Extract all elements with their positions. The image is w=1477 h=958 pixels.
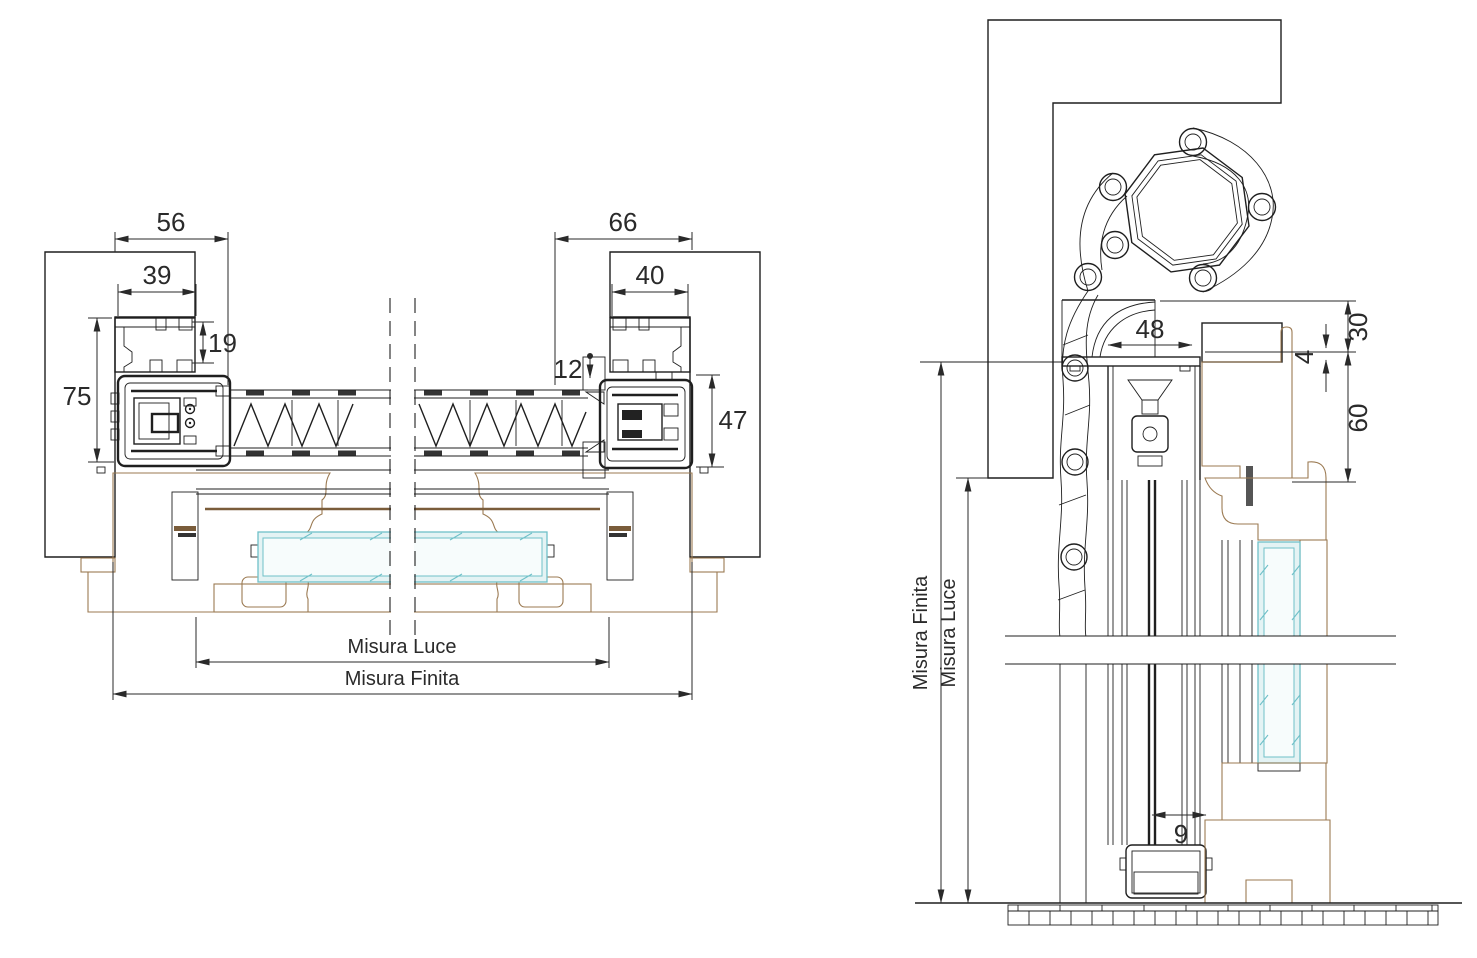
dim-label-75: 75 <box>63 381 92 411</box>
dim-12: 12 <box>554 353 593 384</box>
screen-bottom-bar <box>1126 845 1206 898</box>
dim-19: 19 <box>192 322 237 363</box>
dim-label-19: 19 <box>208 328 237 358</box>
dim-4: 4 <box>1289 324 1326 392</box>
left-drawing: 56 39 19 75 12 66 <box>45 207 760 700</box>
dim-label-48: 48 <box>1136 314 1165 344</box>
dim-label-4: 4 <box>1289 350 1319 364</box>
wood-lintel <box>1202 327 1292 478</box>
aluminium-profile-left <box>115 318 195 372</box>
wood-sill-block <box>1205 820 1330 903</box>
dim-48: 48 <box>1108 314 1192 345</box>
aluminium-profile-right <box>610 318 690 372</box>
dim-label-56: 56 <box>157 207 186 237</box>
dim-misura-luce-vertical: Misura Luce <box>938 478 988 903</box>
dim-30-60-column: 30 60 <box>1160 301 1373 482</box>
dim-label-9: 9 <box>1174 819 1188 849</box>
right-drawing: 48 30 60 4 9 Misura Finita Misura Luc <box>910 20 1462 925</box>
sill-hatch-strip <box>81 558 115 572</box>
dim-39: 39 <box>118 260 196 316</box>
dim-label-47: 47 <box>719 405 748 435</box>
wood-sash-bottom-rail <box>1222 763 1326 820</box>
concrete-wall-l-shape <box>988 20 1281 478</box>
cad-sheet: 56 39 19 75 12 66 <box>0 0 1477 958</box>
dim-label-12: 12 <box>554 354 583 384</box>
concrete-block-small <box>1202 323 1282 362</box>
technical-drawing: 56 39 19 75 12 66 <box>0 0 1477 958</box>
dim-47: 47 <box>696 375 747 467</box>
dim-40: 40 <box>612 260 688 316</box>
roller-octagon <box>1125 148 1249 272</box>
dim-75: 75 <box>63 318 114 462</box>
wood-frame-head <box>1205 462 1326 540</box>
dim-label-misura-finita-v: Misura Finita <box>910 575 932 690</box>
dim-label-39: 39 <box>143 260 172 290</box>
dim-label-60: 60 <box>1343 404 1373 433</box>
floor <box>915 903 1462 925</box>
dim-label-misura-luce-v: Misura Luce <box>938 579 960 688</box>
wood-frame-vertical <box>1202 327 1330 903</box>
roller-shutter-coil <box>1058 128 1276 903</box>
dim-label-30: 30 <box>1343 313 1373 342</box>
screw <box>1246 466 1253 506</box>
dim-label-40: 40 <box>636 260 665 290</box>
dim-label-misura-luce: Misura Luce <box>348 636 457 658</box>
dim-label-66: 66 <box>609 207 638 237</box>
dim-9: 9 <box>1152 815 1206 849</box>
seal-hatch-top <box>583 357 605 390</box>
break-gap <box>1002 636 1398 664</box>
break-gap <box>391 296 414 642</box>
screen-box-vertical <box>920 357 1212 898</box>
dim-misura-finita-vertical: Misura Finita <box>910 362 941 903</box>
dim-label-misura-finita: Misura Finita <box>345 668 460 690</box>
